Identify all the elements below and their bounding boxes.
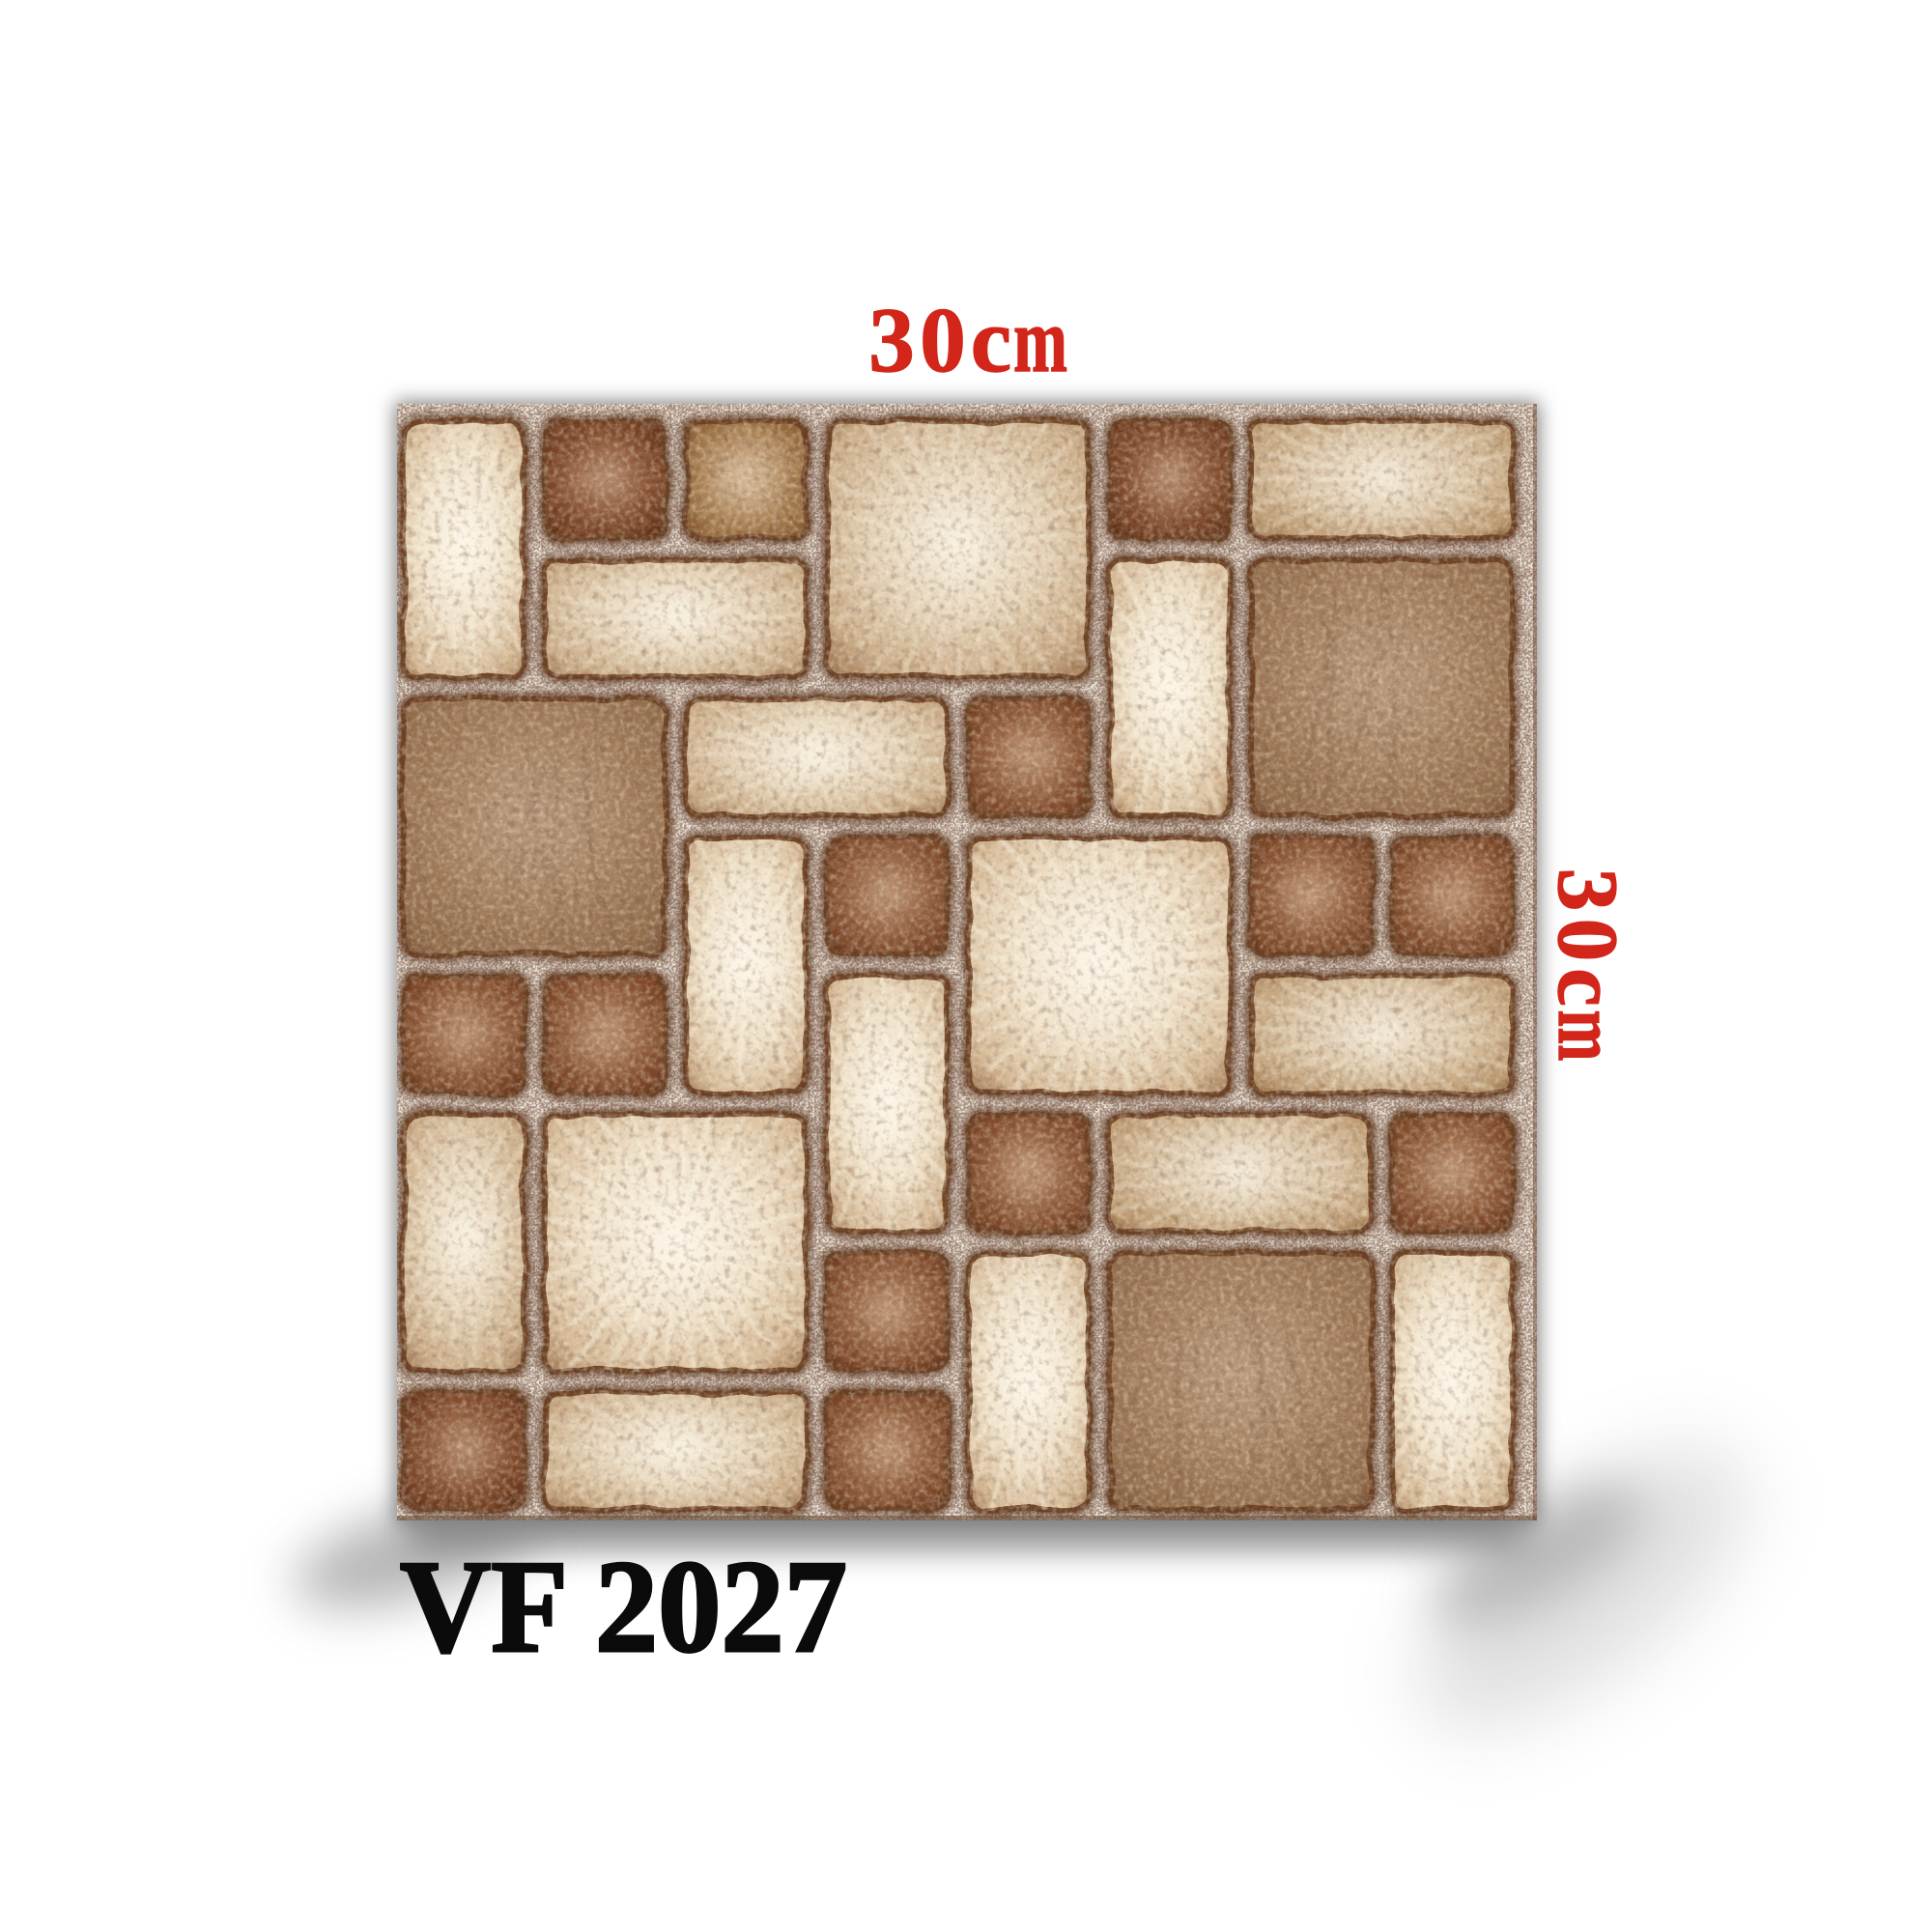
svg-text:VF 2027: VF 2027 bbox=[400, 1533, 847, 1680]
svg-text:m: m bbox=[1013, 289, 1067, 391]
svg-text:3: 3 bbox=[1540, 868, 1634, 912]
svg-text:0: 0 bbox=[920, 289, 966, 391]
svg-text:m: m bbox=[1540, 1010, 1634, 1062]
svg-text:c: c bbox=[1540, 968, 1634, 1007]
svg-text:c: c bbox=[971, 289, 1011, 391]
svg-text:3: 3 bbox=[868, 289, 915, 391]
svg-text:0: 0 bbox=[1540, 919, 1634, 962]
